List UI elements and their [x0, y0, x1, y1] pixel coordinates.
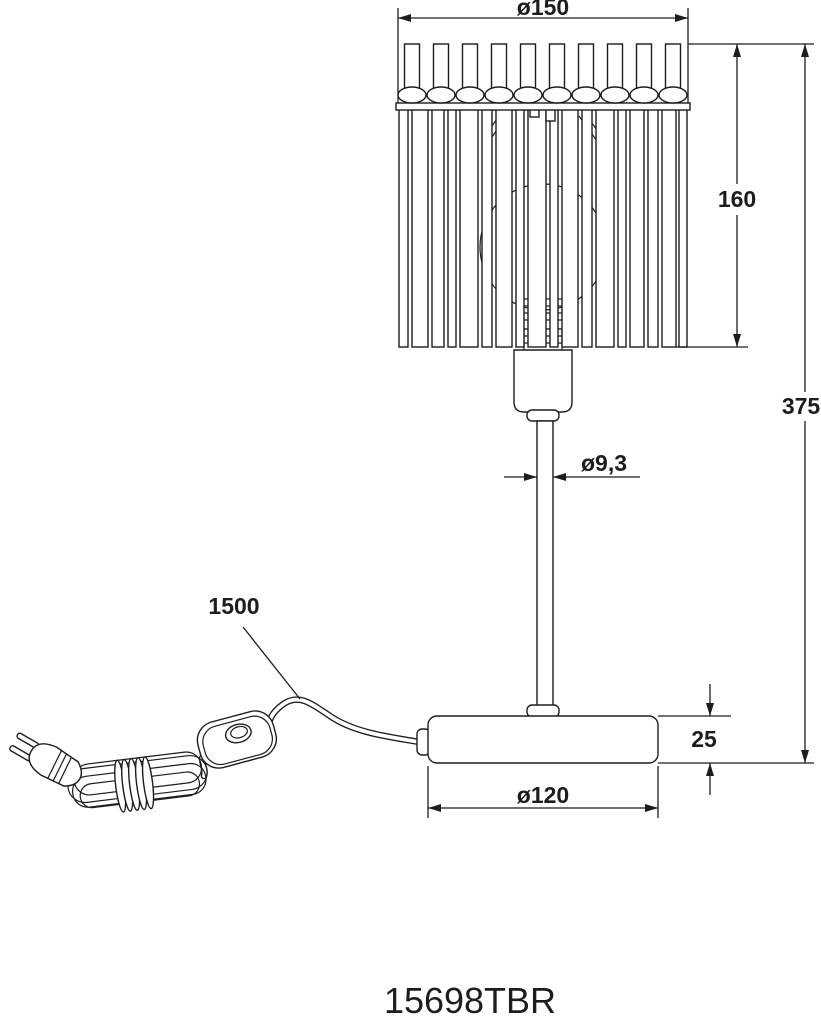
cable-length-leader-line: [243, 627, 300, 699]
dim-cable-length-label: 1500: [208, 593, 259, 619]
dim-total-height-label: 375: [782, 393, 821, 419]
lamp-base: [428, 716, 658, 763]
power-plug: [6, 727, 88, 793]
shade-top-rods: [405, 44, 681, 91]
dim-shade-diameter-label: ø150: [517, 0, 569, 20]
dim-stem-diameter-label: ø9,3: [581, 450, 627, 476]
lamp-technical-drawing: ø150 160 375 ø9,3 1500: [0, 0, 821, 1024]
stem-base-collar: [527, 705, 559, 717]
dim-cable-length: 1500: [208, 593, 300, 699]
dim-base-diameter: ø120: [428, 766, 658, 818]
dim-stem-diameter: ø9,3: [504, 450, 640, 481]
shade-slats: [399, 109, 687, 347]
socket-collar: [527, 410, 559, 421]
technical-drawing-page: ø150 160 375 ø9,3 1500: [0, 0, 821, 1024]
lamp-stem: [537, 421, 553, 707]
dim-base-diameter-label: ø120: [517, 782, 569, 808]
product-code: 15698TBR: [384, 980, 556, 1021]
shade-rod-caps: [398, 87, 687, 103]
cable-coil: [65, 750, 210, 819]
socket-housing: [514, 350, 572, 412]
dim-base-height-label: 25: [691, 726, 717, 752]
dim-base-height: 25: [658, 684, 731, 795]
coil-wrap-rings: [113, 756, 156, 812]
inline-switch: [193, 707, 281, 773]
shade-top-plate: [396, 103, 690, 110]
dim-shade-height-label: 160: [718, 186, 756, 212]
